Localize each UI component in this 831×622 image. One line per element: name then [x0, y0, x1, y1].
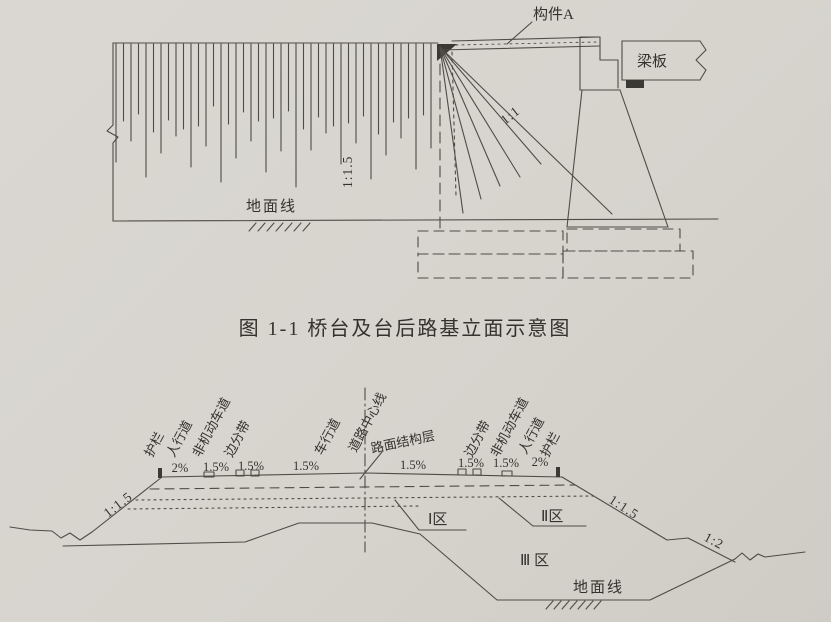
- beam-break-zigzag: [696, 41, 706, 80]
- beam-slab: 梁板: [622, 41, 706, 88]
- fan-lines: [440, 47, 612, 214]
- approach-slab-dots: [456, 42, 596, 45]
- zone-boundary-3: [128, 506, 420, 509]
- left-ditch: [10, 527, 92, 540]
- right-slope: [562, 477, 735, 562]
- embankment-hatch-lines: [116, 44, 431, 187]
- beam-slab-label: 梁板: [637, 52, 667, 70]
- lane-label-guardrail-left: 护栏: [141, 429, 166, 459]
- component-a-label: 构件A: [533, 6, 574, 23]
- approach-slab-top: [452, 37, 600, 41]
- grade-left-0: 2%: [172, 461, 189, 475]
- soil-hatch-fig1: [249, 223, 310, 231]
- guardrail-post-right: [556, 467, 560, 477]
- component-a-leader: [507, 22, 532, 44]
- figure1-elevation: 地面线 1:1.5 1:1 构件A: [107, 6, 718, 278]
- zone-boundary-1: [150, 485, 575, 489]
- foundation-blocks: [418, 229, 693, 278]
- pavement-structure-leader: [360, 452, 382, 479]
- right-slope-upper-label: 1:1.5: [606, 492, 641, 522]
- label-pavement-structure: 路面结构层: [370, 428, 437, 456]
- ground-line-label-fig2: 地面线: [573, 579, 624, 596]
- right-slope-lower-label: 1:2: [702, 529, 727, 552]
- grade-right-3: 2%: [532, 455, 549, 469]
- abutment-backwall: [580, 37, 618, 88]
- zone-labels: Ⅰ区 Ⅱ区 Ⅲ 区: [395, 498, 586, 569]
- natural-ground-line: [63, 523, 735, 600]
- guardrail-post-left: [158, 468, 162, 478]
- bearing-pad: [626, 80, 644, 88]
- lane-label-median-left: 边分带: [221, 418, 253, 459]
- grade-left-3: 1.5%: [293, 459, 319, 473]
- buried-edge-dashed-2: [452, 52, 456, 196]
- zone-3-label: Ⅲ 区: [520, 553, 549, 569]
- soil-hatch-fig2: [546, 601, 601, 609]
- figure2-cross-section: 护栏 人行道 非机动车道 边分带 车行道 道路中心线 路面结构层 边分带 非机动…: [10, 388, 805, 609]
- grade-right-1: 1.5%: [458, 456, 484, 470]
- zone-2-label: Ⅱ区: [541, 509, 563, 525]
- approach-slab-bottom: [440, 46, 600, 50]
- left-slope-label: 1:1.5: [101, 489, 136, 521]
- figure1-caption: 图 1-1 桥台及台后路基立面示意图: [239, 317, 572, 340]
- ground-squiggle-right: [735, 552, 805, 560]
- lane-label-carriageway: 车行道: [311, 416, 343, 457]
- ground-line-fig1: [113, 219, 718, 221]
- lane-labels-right: 路面结构层 边分带 非机动车道 人行道 护栏: [370, 395, 563, 459]
- zone-1-leader: [395, 500, 419, 530]
- grade-labels: 2% 1.5% 1.5% 1.5% 1.5% 1.5% 1.5% 2%: [172, 455, 549, 475]
- zone-1-label: Ⅰ区: [428, 512, 447, 528]
- lane-labels-left: 护栏 人行道 非机动车道 边分带 车行道 道路中心线: [141, 390, 389, 459]
- abutment-stem: [567, 90, 668, 227]
- diagram-canvas: 地面线 1:1.5 1:1 构件A: [0, 0, 831, 622]
- zone-2-leader: [499, 498, 533, 526]
- grade-right-0: 1.5%: [400, 458, 426, 472]
- ground-line-label-fig1: 地面线: [246, 198, 297, 215]
- slope-1-1-5-label-fig1: 1:1.5: [340, 156, 355, 188]
- grade-right-2: 1.5%: [493, 456, 519, 470]
- scanned-page: 地面线 1:1.5 1:1 构件A: [0, 0, 831, 622]
